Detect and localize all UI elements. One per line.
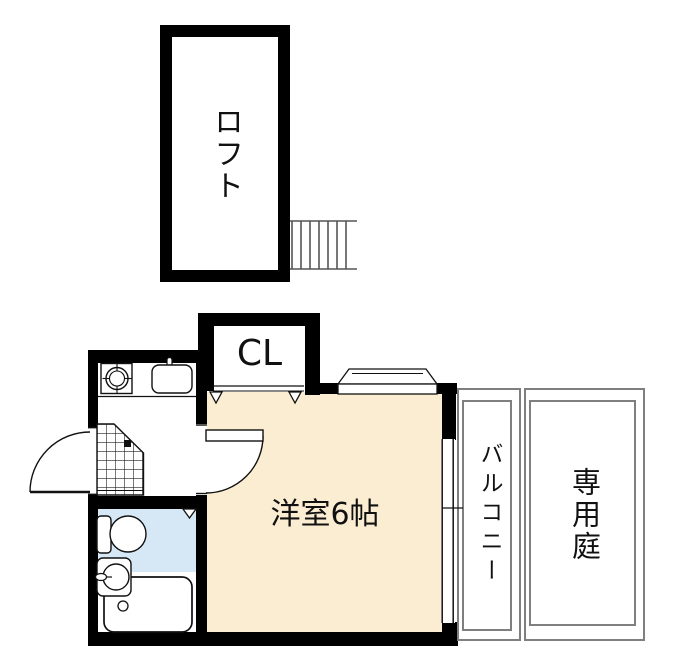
closet-label: CL — [214, 322, 305, 384]
toilet-icon — [97, 516, 146, 553]
garden-label: 専用庭 — [524, 388, 645, 641]
closet-door-marks — [210, 386, 304, 403]
kitchen-sink-icon — [152, 358, 192, 394]
loft-label-text: ロフト — [203, 106, 247, 202]
wash-basin-icon — [96, 558, 132, 596]
main-room-label-text: 洋室6帖 — [270, 489, 379, 533]
main-room-label: 洋室6帖 — [207, 493, 443, 529]
loft-ladder-icon — [290, 221, 357, 269]
stove-burner-icon — [101, 364, 132, 394]
floorplan-canvas: ロフト CL 洋室6帖 バルコニー 専用庭 — [0, 0, 674, 670]
balcony-label-text: バルコニー — [472, 442, 506, 587]
room-door-icon — [196, 424, 263, 495]
balcony-label: バルコニー — [457, 388, 521, 641]
garden-label-text: 専用庭 — [564, 467, 606, 563]
bay-window-icon — [338, 369, 437, 394]
toilet-door-mark — [183, 509, 196, 518]
closet-label-text: CL — [237, 333, 282, 374]
loft-label: ロフト — [160, 25, 290, 282]
kitchen-counter — [98, 358, 196, 397]
staircase-icon — [97, 424, 144, 495]
entry-door-icon — [30, 427, 97, 495]
